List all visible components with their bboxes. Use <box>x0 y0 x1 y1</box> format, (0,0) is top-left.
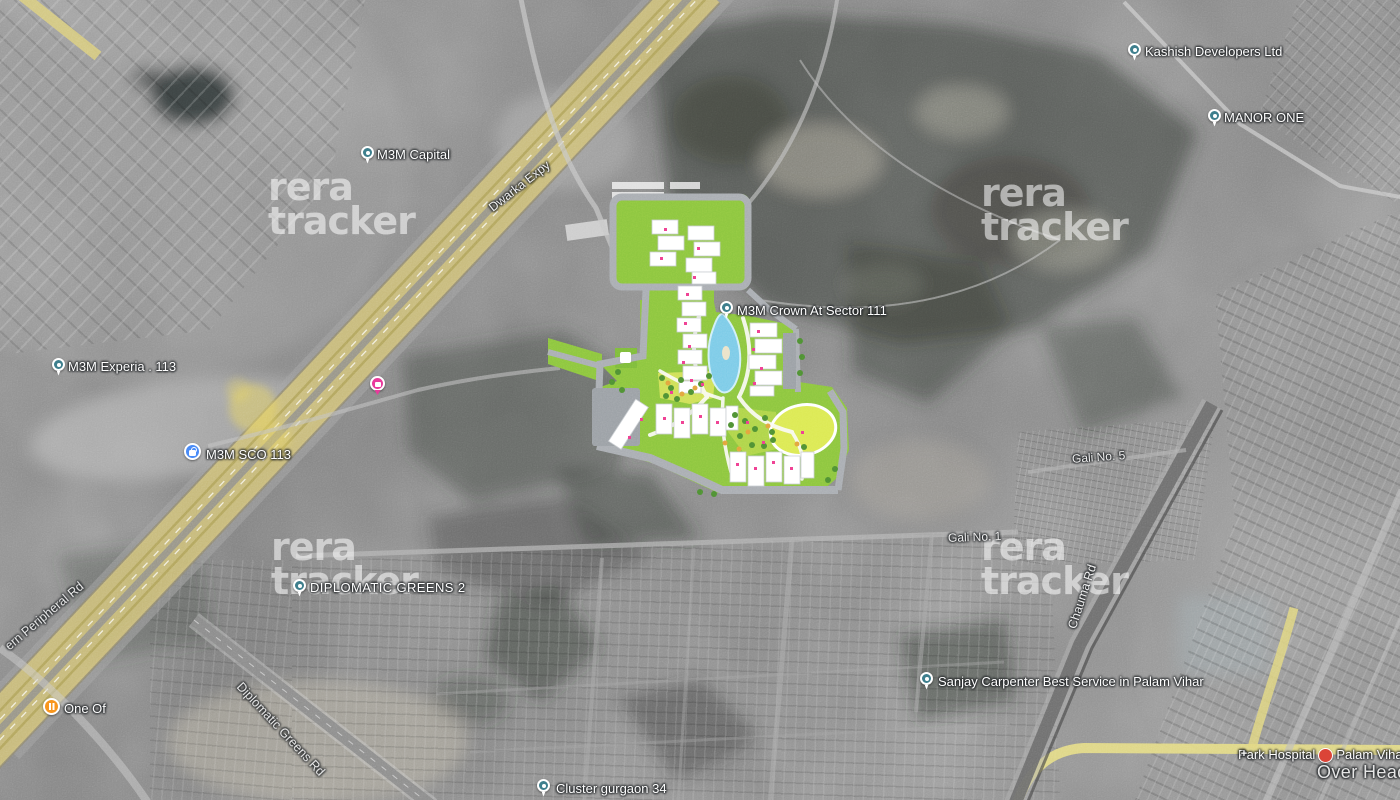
satellite-map[interactable]: rera tracker rera tracker rera tracker r… <box>0 0 1400 800</box>
hospital-icon <box>1318 748 1333 763</box>
place-pin-icon[interactable] <box>920 672 933 685</box>
road-label-gali-no-1: Gali No. 1 <box>948 530 1002 545</box>
locality-label-over-head: Over Head <box>1317 763 1400 783</box>
place-label-diplomatic-greens-2[interactable]: DIPLOMATIC GREENS 2 <box>310 581 465 595</box>
place-pin-icon[interactable] <box>537 779 550 792</box>
place-pin-icon[interactable] <box>720 301 733 314</box>
place-label-m3m-sco[interactable]: M3M SCO 113 <box>206 448 291 462</box>
place-pin-icon[interactable] <box>52 358 65 371</box>
place-label-sanjay-carpenter[interactable]: Sanjay Carpenter Best Service in Palam V… <box>938 675 1204 689</box>
place-label-one-of[interactable]: One Of <box>64 702 106 716</box>
place-label-kashish-developers[interactable]: Kashish Developers Ltd <box>1145 45 1282 59</box>
place-label-m3m-crown[interactable]: M3M Crown At Sector 111 <box>737 304 887 318</box>
place-label-text: Palam Viha <box>1336 748 1400 762</box>
place-pin-icon[interactable] <box>361 146 374 159</box>
place-label-park-hospital[interactable]: Park Hospital Palam Viha <box>1238 748 1400 763</box>
restaurant-pin-icon[interactable] <box>43 698 60 715</box>
place-label-m3m-experia[interactable]: M3M Experia . 113 <box>68 360 176 374</box>
place-pin-icon[interactable] <box>1128 43 1141 56</box>
place-label-manor-one[interactable]: MANOR ONE <box>1224 111 1304 125</box>
place-label-m3m-capital[interactable]: M3M Capital <box>377 148 450 162</box>
place-label-cluster-gurgaon[interactable]: Cluster gurgaon 34 <box>556 782 667 796</box>
place-pin-icon[interactable] <box>1208 109 1221 122</box>
shopping-pin-icon[interactable] <box>184 443 201 460</box>
place-pin-icon[interactable] <box>293 579 306 592</box>
store-pin-icon[interactable] <box>370 376 385 391</box>
